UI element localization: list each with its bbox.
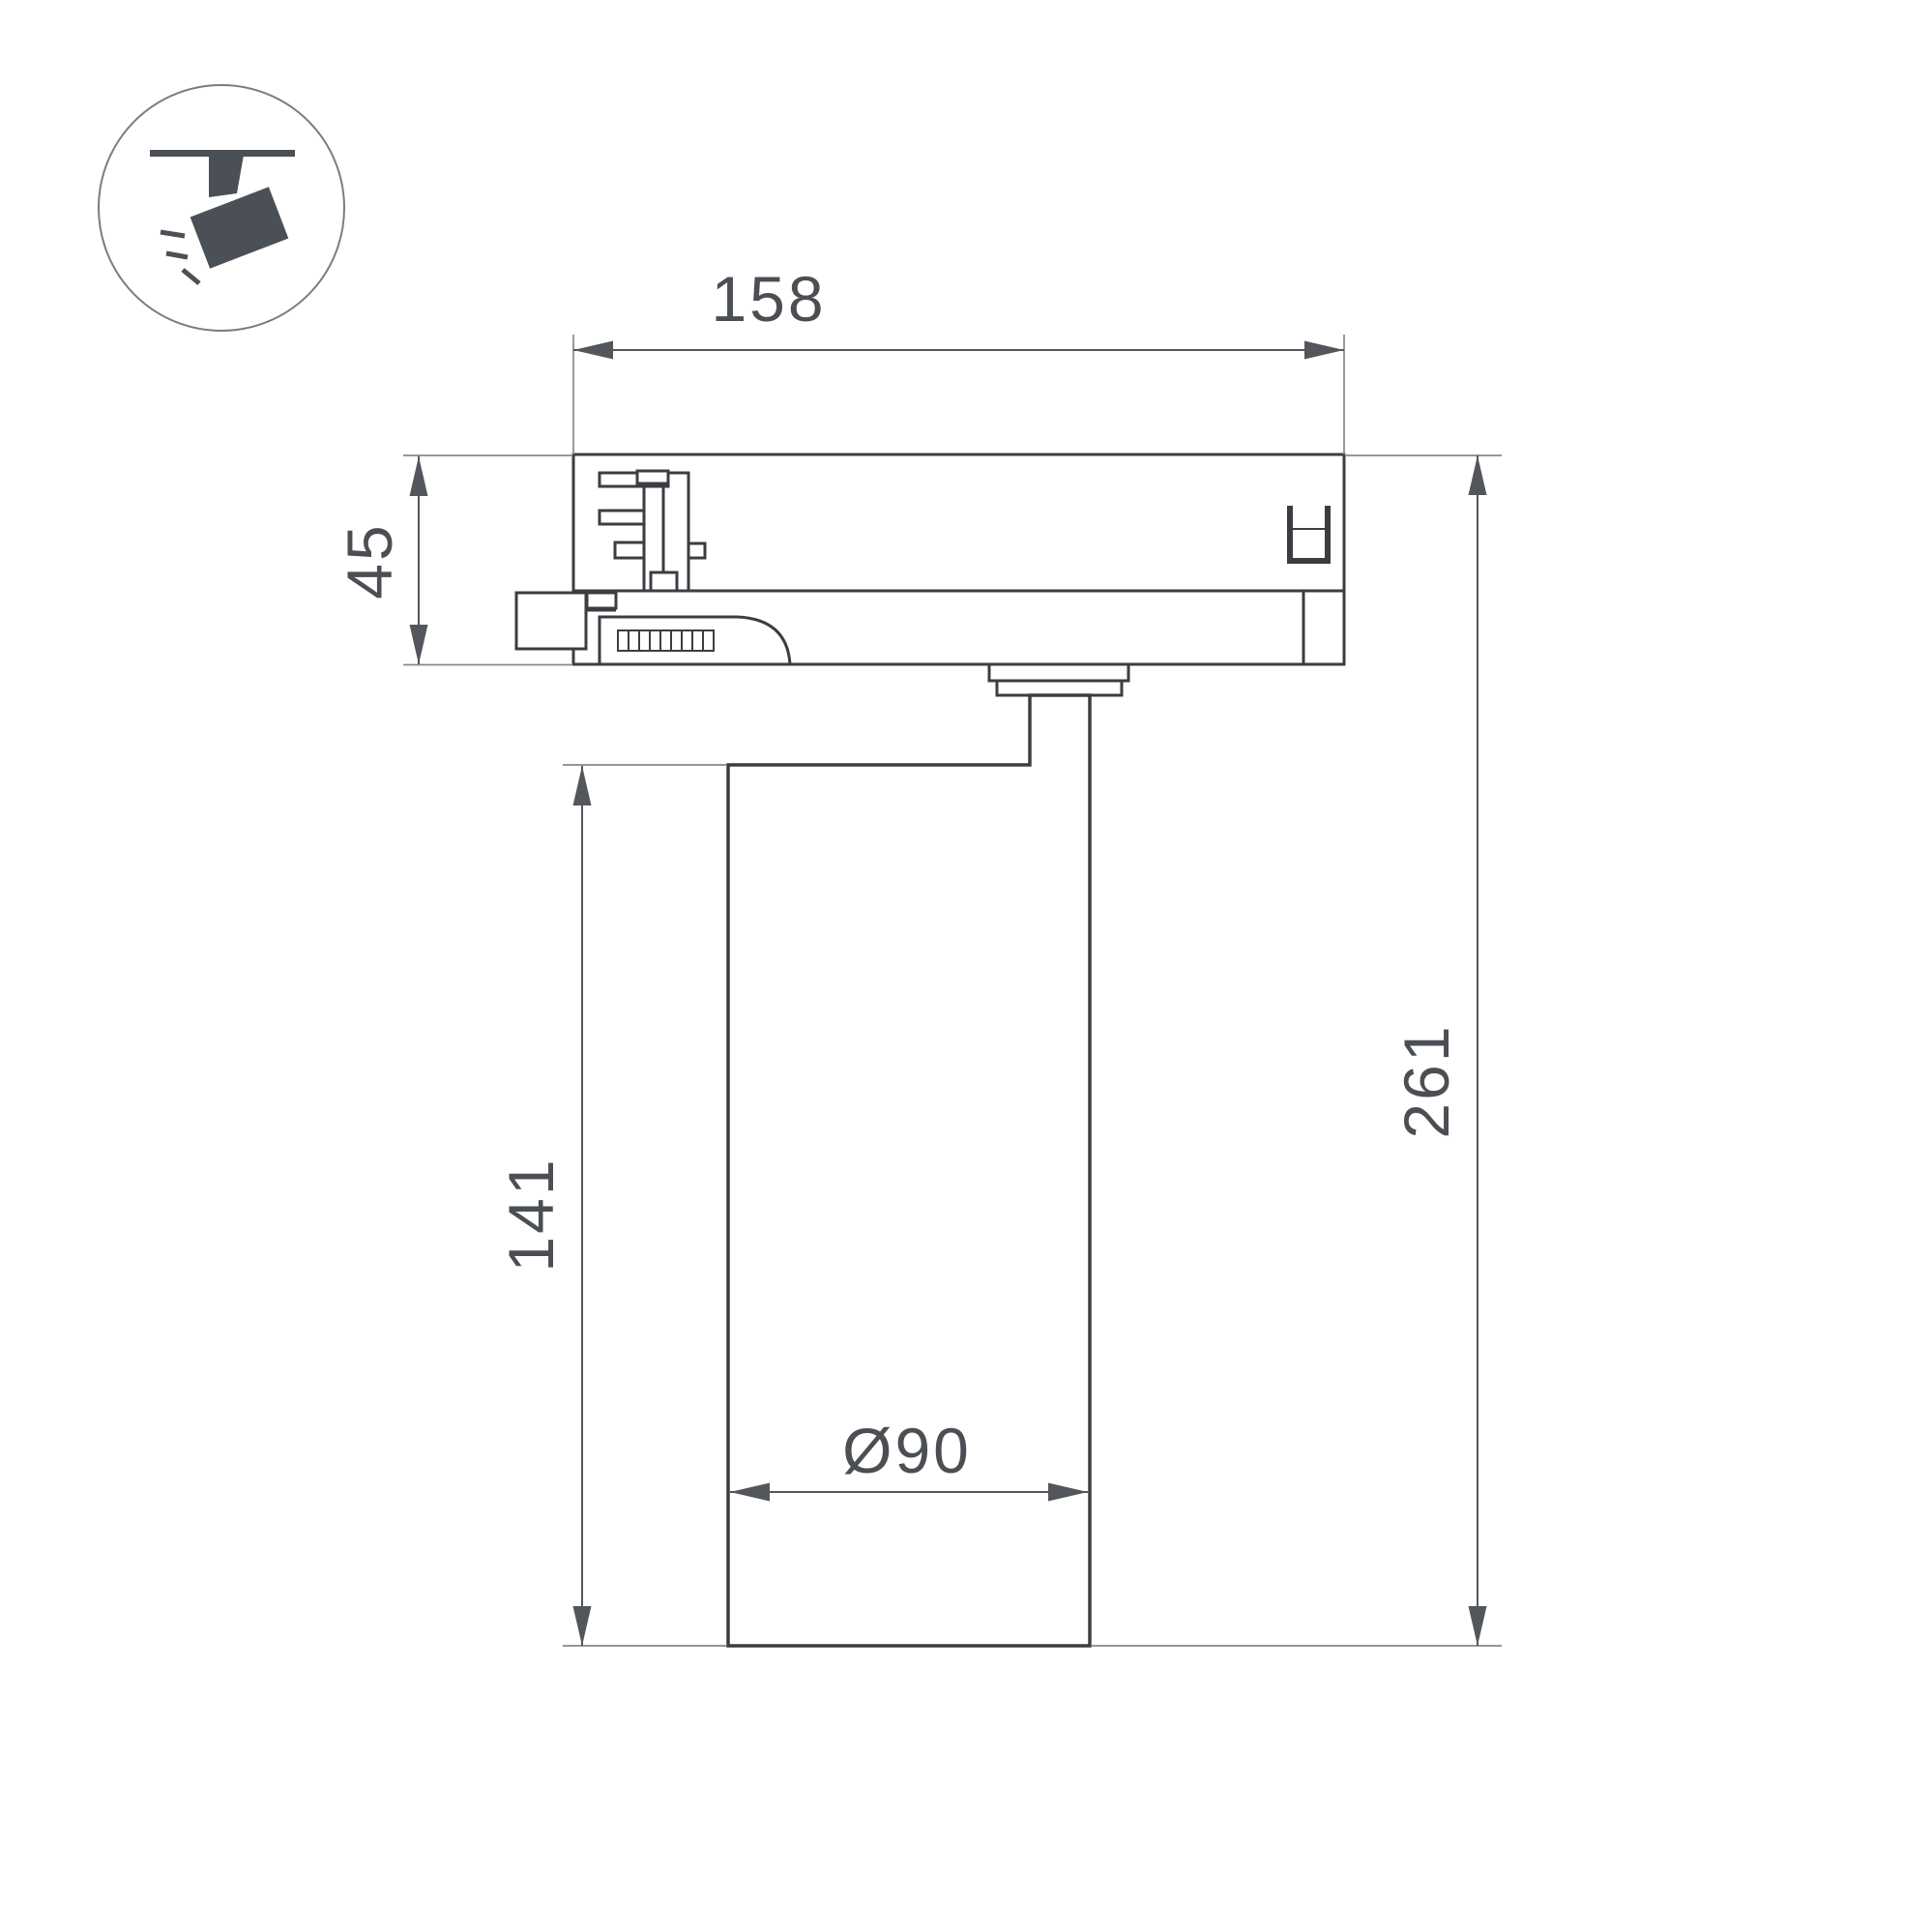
arrowhead-right: [1304, 341, 1344, 360]
dim-label-adapter-height: 45: [337, 522, 401, 599]
contact-side-tab: [688, 543, 705, 558]
arrowhead-down: [1469, 1606, 1487, 1646]
track-adapter: [516, 454, 1344, 664]
arrowhead-up: [1469, 455, 1487, 495]
arrowhead-left: [573, 341, 613, 360]
lock-lever: [516, 593, 586, 649]
contact-foot: [651, 572, 677, 591]
flange-step-2: [997, 681, 1122, 695]
contact-prong-middle: [600, 511, 644, 524]
dim-label-body-height: 141: [499, 1156, 563, 1272]
lamp-assembly: [728, 664, 1128, 1646]
arrowhead-down: [573, 1606, 592, 1646]
dim-label-adapter-width: 158: [711, 267, 826, 331]
contact-cap: [637, 471, 668, 483]
lock-clip: [587, 593, 616, 608]
dim-label-total-height: 261: [1394, 1023, 1458, 1138]
contact-prong-bottom: [615, 542, 644, 558]
lamp-cylinder-body: [728, 695, 1090, 1646]
dimension-141: [563, 765, 726, 1646]
arrowhead-up: [410, 456, 428, 496]
flange-step-1: [989, 664, 1128, 681]
arrowhead-down: [410, 625, 428, 664]
arrowhead-up: [573, 766, 592, 805]
dim-label-body-diameter: Ø90: [842, 1419, 972, 1482]
track-spotlight-icon: [99, 85, 344, 331]
dimension-drawing: [0, 0, 1932, 1932]
technical-drawing-canvas: 158 45 141 261 Ø90: [0, 0, 1932, 1932]
dimension-158: [573, 335, 1344, 454]
